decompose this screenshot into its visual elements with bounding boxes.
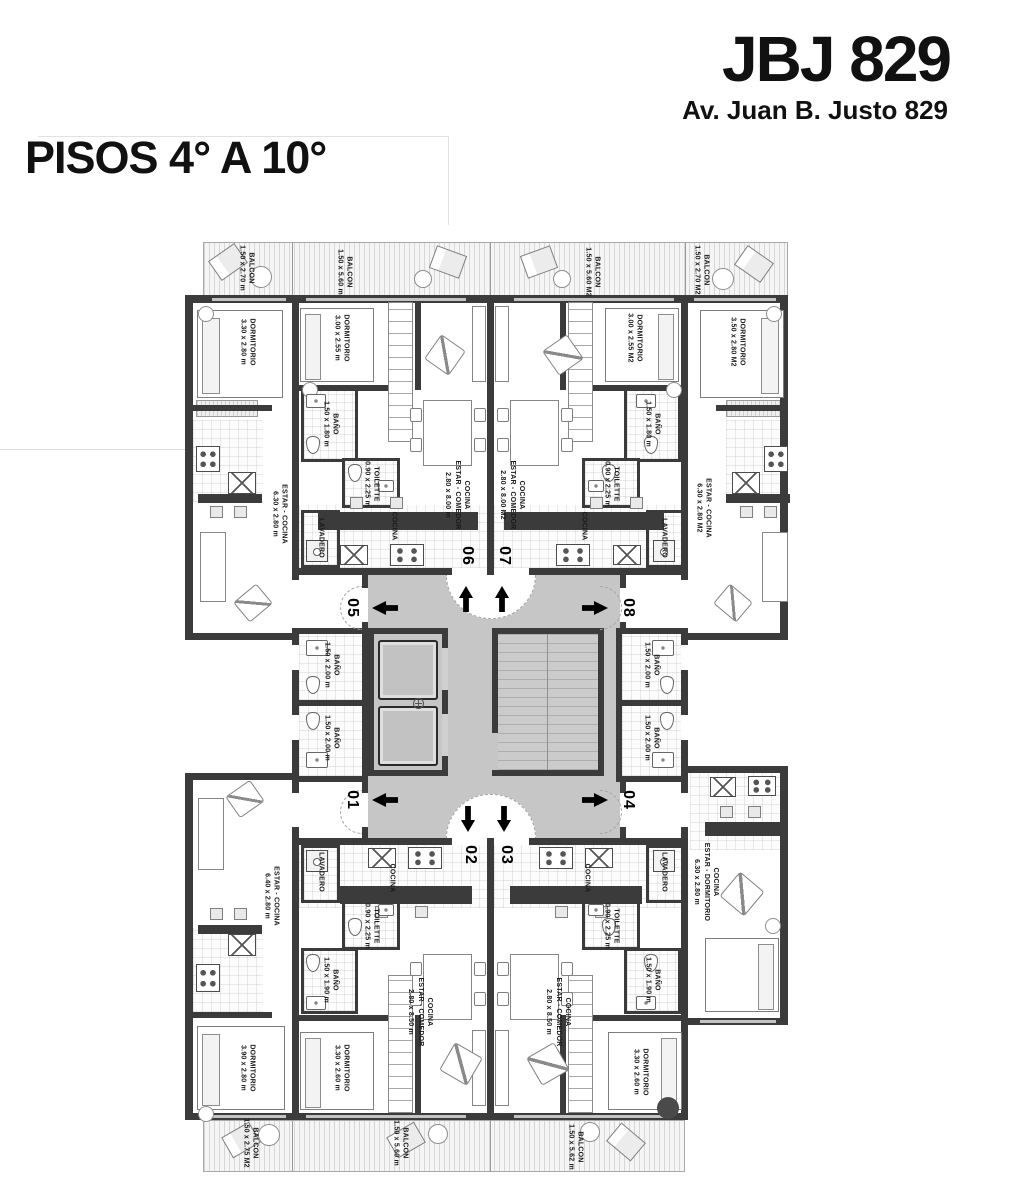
floorplan-canvas: JBJ 829 Av. Juan B. Justo 829 PISOS 4° A… [0, 0, 1013, 1200]
stair-wall [598, 628, 604, 776]
sink-icon [732, 472, 760, 494]
window [514, 1115, 670, 1118]
wall [299, 700, 362, 706]
wall [292, 827, 299, 1120]
stool [764, 506, 777, 518]
elevator-door [442, 714, 448, 756]
wall [362, 780, 368, 793]
wall [616, 628, 681, 634]
window [212, 298, 286, 301]
kitchen-counter [198, 925, 262, 934]
room-label-dormitorio-03: DORMITORIO 3.30 x 2.60 m [631, 1048, 650, 1095]
chair [410, 438, 422, 452]
sofa [198, 798, 224, 870]
room-label-toilette-03: TOILETTE 0.90 x 2.25 m [602, 903, 621, 949]
wall [299, 1015, 390, 1021]
window [306, 298, 466, 301]
stool [415, 906, 428, 918]
armchair [233, 583, 273, 622]
wall [780, 766, 788, 1025]
room-label-dormitorio-05: DORMITORIO 3.30 x 2.80 m [238, 318, 257, 365]
wall [299, 838, 452, 845]
stair-wall [492, 770, 604, 776]
window [700, 1020, 776, 1023]
sink-icon [228, 472, 256, 494]
stool [390, 497, 403, 509]
bed [705, 938, 779, 1012]
balcony-divider [490, 242, 491, 298]
wall [688, 766, 788, 773]
stove-icon [748, 776, 776, 796]
window [306, 1115, 466, 1118]
room-label-dormitorio-01: DORMITORIO 3.90 x 2.80 m [238, 1044, 257, 1091]
room-label-comedor-07: COCINA ESTAR - COMEDOR 2.80 x 8.00 M2 [498, 461, 526, 530]
dining-table [510, 400, 559, 466]
sofa [495, 1030, 509, 1106]
sink-icon [613, 545, 641, 565]
chair [497, 438, 509, 452]
room-label-balcon-02: BALCON 1.50 x 5.60 m [391, 1120, 410, 1166]
kitchen-island [510, 886, 642, 904]
building-brand: JBJ 829 [722, 22, 950, 96]
stool [210, 506, 223, 518]
room-label-dormitorio-06: DORMITORIO 3.00 x 2.55 m [332, 314, 351, 361]
chair [497, 992, 509, 1006]
wall [185, 295, 193, 640]
wall [620, 575, 626, 588]
wall [681, 827, 688, 1120]
lamp [198, 1106, 214, 1122]
balcony-divider [490, 1120, 491, 1172]
room-label-balcon-07: BALCON 1.50 x 5.60 M2 [583, 247, 602, 297]
room-label-cocina-03: COCINA [582, 864, 591, 893]
stove-icon [556, 544, 590, 566]
sink-icon [228, 934, 256, 956]
room-label-toilette-07: TOILETTE 0.90 x 2.25 m [602, 461, 621, 507]
room-label-estar-01: ESTAR - COCINA 6.40 x 2.80 m [262, 866, 281, 926]
wall [192, 1012, 272, 1018]
property-line [0, 449, 193, 450]
lamp [766, 306, 782, 322]
chair [474, 438, 486, 452]
room-label-lavadero-07: LAVADERO [659, 518, 668, 558]
room-label-balcon-01: BALCON 1.50 x 2.75 M2 [241, 1118, 260, 1168]
chair [497, 962, 509, 976]
stool [748, 806, 761, 818]
chair [561, 408, 573, 422]
wall [716, 405, 788, 411]
unit-number-03: 03 [497, 845, 515, 865]
unit-number-06: 06 [458, 546, 476, 566]
kitchen-counter [198, 494, 262, 503]
wall [529, 838, 681, 845]
wall [192, 405, 272, 411]
dining-table [423, 400, 472, 466]
room-label-bano-core-01: BAÑO 1.50 x 2.00 m [322, 715, 341, 761]
kitchen-island [705, 822, 780, 836]
wall [292, 670, 299, 715]
chair [474, 962, 486, 976]
wall [590, 1015, 681, 1021]
stool [720, 806, 733, 818]
elevator-cabin [378, 706, 438, 766]
wall [620, 827, 626, 838]
balcony-table [712, 268, 734, 290]
room-label-bano-core-04: BAÑO 1.50 x 2.00 m [642, 715, 661, 761]
room-label-lavadero-06: LAVADERO [316, 518, 325, 558]
room-label-comedor-06: COCINA ESTAR - COMEDOR 2.80 x 8.00 m [443, 461, 471, 530]
wall [362, 827, 368, 838]
stool [555, 906, 568, 918]
stool [234, 506, 247, 518]
closet [388, 302, 413, 442]
sofa [762, 532, 788, 602]
wall [487, 838, 494, 1120]
chair [474, 408, 486, 422]
room-label-comedor-03: COCINA ESTAR - COMEDOR 2.80 x 8.50 m [544, 978, 572, 1047]
room-label-bano-core-08: BAÑO 1.50 x 2.00 m [642, 642, 661, 688]
elevator-shaft-wall [368, 634, 374, 776]
wall [681, 640, 688, 645]
stove-icon [408, 847, 442, 869]
stool [234, 908, 247, 920]
wall [299, 776, 362, 782]
room-label-estar-08: ESTAR - COCINA 6.30 x 2.80 M2 [694, 478, 713, 538]
wall [185, 780, 193, 1120]
wall [292, 295, 299, 580]
elevator-cabin [378, 640, 438, 700]
stool [740, 506, 753, 518]
stove-icon [196, 964, 220, 992]
lamp [666, 382, 682, 398]
sofa [495, 306, 509, 382]
room-label-bano-core-05: BAÑO 1.50 x 2.00 m [322, 642, 341, 688]
sink-icon [340, 545, 368, 565]
chair [410, 962, 422, 976]
room-label-dormitorio-02: DORMITORIO 3.30 x 2.60 m [332, 1044, 351, 1091]
stove-icon [390, 544, 424, 566]
unit-number-01: 01 [343, 790, 361, 810]
room-label-balcon-06: BALCON 1.50 x 5.60 m [335, 249, 354, 295]
chair [561, 962, 573, 976]
room-label-bano-07: BAÑO 1.50 x 1.80 m [643, 401, 662, 447]
armchair [713, 583, 753, 622]
elevator-shaft-wall [368, 628, 448, 634]
room-label-cocina-02: COCINA [387, 864, 396, 893]
column-marker [657, 1097, 679, 1119]
room-label-comedor-02: COCINA ESTAR - COMEDOR 2.80 x 8.50 m [406, 978, 434, 1047]
wall [681, 295, 688, 580]
wall [415, 302, 421, 390]
kitchen-counter [726, 494, 790, 503]
lamp [198, 306, 214, 322]
sofa [200, 532, 226, 602]
chair [410, 408, 422, 422]
staircase [498, 634, 598, 770]
balcony-table [553, 270, 571, 288]
armchair [719, 871, 764, 916]
stove-icon [539, 847, 573, 869]
wall [362, 575, 368, 588]
wall [529, 568, 681, 575]
chair [497, 408, 509, 422]
elevator-symbol-icon [413, 698, 424, 709]
room-label-balcon-05: BALCON 1.50 x 2.70 m [237, 245, 256, 291]
kitchen-island [340, 886, 472, 904]
stove-icon [764, 446, 788, 472]
wall [681, 766, 688, 793]
balcony-table [414, 270, 432, 288]
wall [292, 780, 299, 793]
title-frame [38, 136, 449, 225]
wall [185, 773, 299, 780]
balcony-divider [292, 1120, 293, 1172]
room-label-dormitorio-08: DORMITORIO 3.50 x 2.80 M2 [728, 317, 747, 367]
wall [681, 670, 688, 715]
wall [681, 633, 788, 640]
unit-number-07: 07 [495, 546, 513, 566]
stool [630, 497, 643, 509]
window [514, 298, 674, 301]
room-label-cocina-06: COCINA [389, 512, 398, 541]
chair [561, 438, 573, 452]
wall [616, 700, 681, 706]
room-label-toilette-02: TOILETTE 0.90 x 2.25 m [362, 903, 381, 949]
wall [299, 568, 452, 575]
unit-number-05: 05 [343, 598, 361, 618]
stair-divider [547, 634, 548, 770]
unit-number-04: 04 [619, 790, 637, 810]
room-label-balcon-03: BALCON 1.50 x 5.62 m [566, 1124, 585, 1170]
room-label-balcon-08: BALCON 1.50 x 2.70 M2 [692, 245, 711, 295]
wall [292, 640, 299, 645]
wall [185, 633, 299, 640]
window [694, 298, 776, 301]
sink-icon [710, 777, 736, 797]
elevator-door [442, 648, 448, 690]
room-label-bano-03: BAÑO 1.50 x 1.90 m [643, 957, 662, 1003]
room-label-lavadero-02: LAVADERO [316, 852, 325, 892]
chair [474, 992, 486, 1006]
balcony-table [428, 1124, 448, 1144]
stove-icon [196, 446, 220, 472]
sofa [472, 306, 486, 382]
room-label-dormitorio-07: DORMITORIO 3.00 x 2.55 M2 [625, 313, 644, 363]
armchair [225, 780, 264, 819]
room-label-toilette-06: TOILETTE 0.90 x 2.25 m [362, 461, 381, 507]
building-address: Av. Juan B. Justo 829 [682, 95, 948, 126]
elevator-shaft-wall [368, 770, 448, 776]
lamp [765, 918, 781, 934]
unit-number-08: 08 [619, 598, 637, 618]
armchair [424, 334, 466, 376]
room-label-estar-05: ESTAR - COCINA 6.30 x 2.80 m [270, 484, 289, 544]
balcony-divider [292, 242, 293, 298]
wall [299, 628, 362, 634]
balcony-table [258, 1124, 280, 1146]
room-label-lavadero-03: LAVADERO [659, 852, 668, 892]
room-label-bano-06: BAÑO 1.50 x 1.80 m [321, 401, 340, 447]
room-label-estar-04: COCINA ESTAR - DORMITORIO 6.30 x 2.80 m [692, 843, 720, 921]
unit-number-02: 02 [461, 845, 479, 865]
room-label-cocina-07: COCINA [579, 512, 588, 541]
stool [210, 908, 223, 920]
room-label-bano-02: BAÑO 1.50 x 1.90 m [321, 957, 340, 1003]
wall [487, 295, 494, 575]
balcony-divider [685, 242, 686, 298]
